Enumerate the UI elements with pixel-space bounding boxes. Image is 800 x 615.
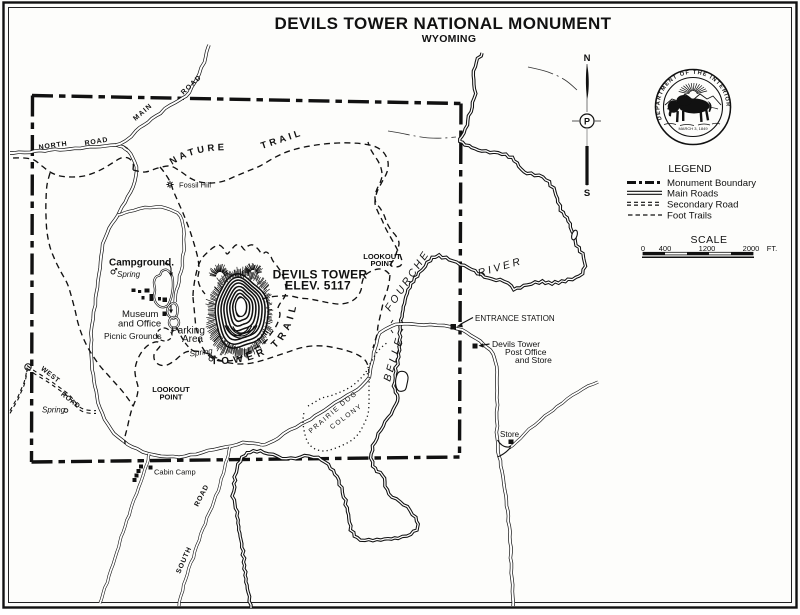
svg-text:Main Roads: Main Roads bbox=[667, 189, 718, 200]
svg-text:and Office: and Office bbox=[118, 319, 161, 330]
svg-text:and Store: and Store bbox=[515, 355, 552, 365]
svg-text:Fossil Hill: Fossil Hill bbox=[179, 181, 211, 190]
svg-text:Spring: Spring bbox=[117, 270, 141, 279]
svg-text:POINT: POINT bbox=[160, 393, 183, 402]
svg-text:400: 400 bbox=[659, 244, 672, 253]
svg-text:ENTRANCE STATION: ENTRANCE STATION bbox=[475, 314, 555, 323]
svg-text:1200: 1200 bbox=[699, 244, 716, 253]
svg-text:Spring: Spring bbox=[42, 406, 66, 415]
svg-text:Picnic Grounds: Picnic Grounds bbox=[104, 331, 162, 341]
svg-text:FT.: FT. bbox=[767, 244, 777, 253]
svg-text:Store: Store bbox=[500, 430, 520, 439]
svg-text:Foot Trails: Foot Trails bbox=[667, 211, 712, 222]
svg-text:WYOMING: WYOMING bbox=[422, 33, 477, 45]
svg-text:ELEV. 5117: ELEV. 5117 bbox=[285, 279, 351, 293]
svg-text:N: N bbox=[584, 53, 591, 64]
svg-text:Campground.: Campground. bbox=[109, 258, 174, 269]
svg-text:MARCH 3, 1849: MARCH 3, 1849 bbox=[678, 126, 708, 131]
svg-text:Secondary Road: Secondary Road bbox=[667, 200, 738, 211]
svg-text:0: 0 bbox=[641, 244, 645, 253]
svg-text:Monument Boundary: Monument Boundary bbox=[667, 178, 756, 189]
svg-text:Cabin Camp: Cabin Camp bbox=[154, 468, 196, 477]
svg-text:POINT: POINT bbox=[371, 259, 394, 268]
svg-text:P: P bbox=[584, 117, 590, 127]
svg-text:S: S bbox=[584, 188, 590, 199]
svg-text:Area: Area bbox=[182, 334, 204, 345]
svg-text:DEVILS TOWER NATIONAL MONUM: DEVILS TOWER NATIONAL MONUMENT bbox=[275, 14, 612, 33]
svg-text:LEGEND: LEGEND bbox=[668, 163, 712, 175]
svg-text:2000: 2000 bbox=[743, 244, 760, 253]
